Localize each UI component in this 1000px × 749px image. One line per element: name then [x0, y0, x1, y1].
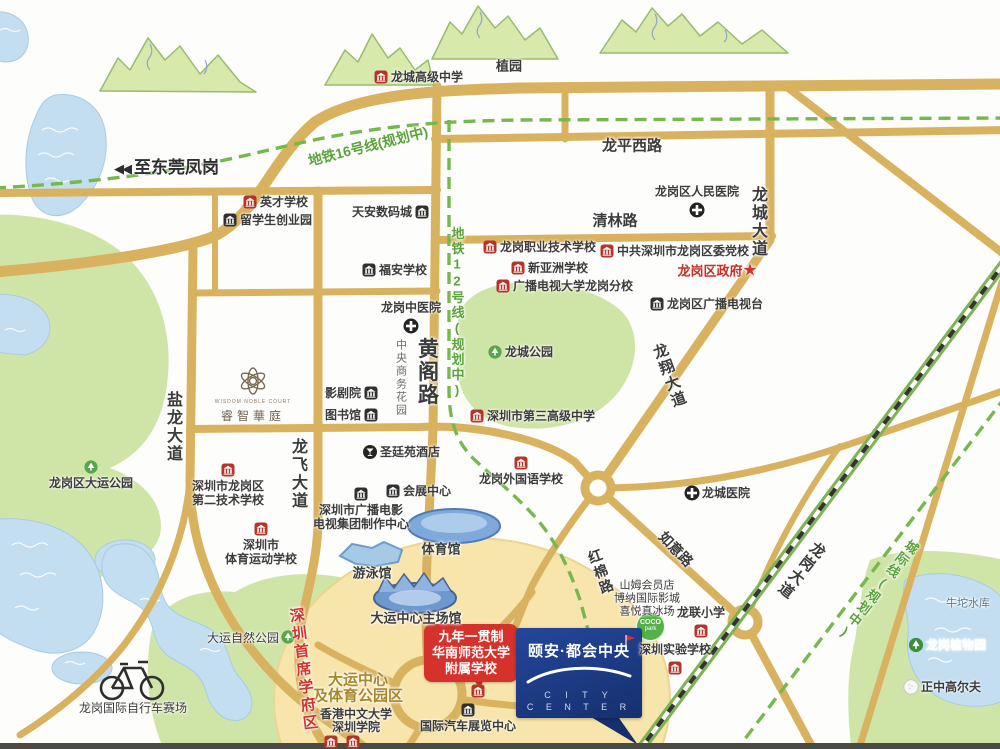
project-en1: C I T Y	[516, 690, 642, 700]
label-sam-line1: 山姆会员店	[620, 581, 675, 592]
poi-no2-tech-school-label: 深圳市龙岗区第二技术学校	[192, 479, 264, 508]
label-cbd-garden: 中央商务花园	[395, 339, 406, 417]
poi-convention-center-label: 会展中心	[403, 484, 451, 498]
poi-auto-expo-center-icon	[462, 704, 475, 717]
poi-shengtingyuan-hotel-label: 圣廷苑酒店	[380, 445, 440, 459]
poi-lg-people-hospital-icon	[689, 202, 705, 218]
poi-longlian-primary-icon	[695, 625, 708, 638]
poi-no3-senior-high-label: 深圳市第三高级中学	[487, 409, 595, 423]
project-callout: 颐安·都会中央 C I T Y C E N T E R	[516, 628, 642, 718]
poi-sz-experimental-school-label: 深圳实验学校	[639, 643, 711, 657]
poi-lg-vocational-school-label: 龙岗职业技术学校	[500, 240, 596, 254]
poi-longcheng-hospital-label: 龙城医院	[702, 486, 750, 500]
poi-yingcai-school-label: 英才学校	[260, 195, 308, 209]
poi-tianan-cyber-park-icon	[416, 206, 429, 219]
poi-lg-people-hospital-label: 龙岗区人民医院	[655, 185, 739, 199]
poi-lg-tcm-hospital-icon	[403, 318, 419, 334]
bottom-bar	[0, 743, 1000, 749]
label-cuhk-2: 深圳学院	[332, 721, 380, 733]
label-government: 龙岗区政府	[677, 265, 742, 278]
school-badge-line1: 九年一贯制	[426, 629, 516, 645]
poi-longcheng-senior-high-label: 龙城高级中学	[391, 70, 463, 84]
court-logo: WISDOM NOBLE COURT 睿智華庭	[213, 362, 293, 424]
poi-convention-center-icon	[387, 485, 400, 498]
coco-line1: COCO	[637, 619, 664, 626]
label-qinglin-rd: 清林路	[592, 214, 637, 229]
project-swoosh-icon	[522, 660, 636, 686]
direction-text: 至东莞凤岗	[134, 158, 219, 177]
poi-dayun-park-label: 龙岗区大运公园	[49, 476, 133, 490]
school-badge: 九年一贯制 华南师范大学 附属学校	[424, 624, 518, 682]
label-huangge-rd: 黄阁路	[417, 338, 438, 407]
poi-cinema-icon	[365, 387, 378, 400]
poi-lg-botanical-garden-label: 龙岗植物园	[926, 638, 986, 652]
poi-no2-tech-school-icon	[222, 464, 235, 477]
label-reservoir: 牛坨水库	[946, 599, 990, 610]
label-natatorium: 游泳馆	[352, 567, 391, 580]
label-gymnasium: 体育馆	[421, 543, 460, 556]
poi-overseas-startup-park-icon	[224, 214, 237, 227]
poi-media-production-center-label: 深圳市广播电影电视集团制作中心	[313, 503, 409, 532]
poi-fuan-school-label: 福安学校	[379, 263, 427, 277]
poi-longcheng-park-label: 龙城公园	[505, 345, 553, 359]
poi-rtvu-lg-branch-label: 广播电视大学龙岗分校	[513, 279, 633, 293]
poi-cuhk-icon-2-icon	[347, 736, 360, 749]
poi-overseas-startup-park-label: 留学生创业园	[240, 213, 312, 227]
natatorium-icon	[340, 542, 402, 566]
double-left-arrow-icon: ◀◀	[114, 161, 130, 176]
poi-new-asia-school-icon	[512, 262, 525, 275]
school-badge-line3: 附属学校	[426, 661, 516, 677]
court-logo-zh: 睿智華庭	[213, 407, 293, 424]
label-sam-line2: 博纳国际影城	[614, 594, 680, 605]
project-title: 颐安·都会中央	[516, 640, 642, 661]
poi-sports-school-icon	[255, 523, 268, 536]
poi-lg-botanical-garden-icon	[909, 638, 924, 653]
poi-media-production-center-icon	[355, 488, 368, 501]
poi-longlian-primary-label: 龙联小学	[677, 606, 725, 620]
project-en2: C E N T E R	[516, 702, 642, 712]
poi-hnu-affiliated-site-icon	[472, 685, 485, 698]
label-gov-star: ★	[742, 262, 757, 279]
direction-note: ◀◀至东莞凤岗	[114, 153, 219, 178]
label-dayun-main-stadium: 大运中心主场馆	[370, 612, 461, 625]
map-canvas: ◀◀至东莞凤岗 WISDOM NOBLE COURT 睿智華庭 COCO par…	[0, 0, 1000, 749]
poi-zhengzhong-golf-label: 正中高尔夫	[921, 680, 981, 694]
poi-sports-school-label: 深圳市体育运动学校	[225, 538, 297, 567]
label-dayun-zone-1: 大运中心	[328, 673, 388, 688]
poi-cuhk-icon-1-icon	[325, 736, 338, 749]
poi-shengtingyuan-hotel-icon	[363, 445, 378, 460]
poi-yingcai-school-icon	[244, 196, 257, 209]
poi-longcheng-park-icon	[488, 345, 502, 359]
poi-fuan-school-icon	[363, 264, 376, 277]
poi-lg-party-school-label: 中共深圳市龙岗区委党校	[617, 244, 749, 258]
label-zhiyuan: 植园	[496, 60, 522, 73]
poi-cinema-label: 影剧院	[325, 386, 361, 400]
poi-longcheng-hospital-icon	[684, 485, 700, 501]
poi-lg-foreign-language-school-icon	[515, 457, 528, 470]
poi-no3-senior-high-icon	[471, 410, 484, 423]
label-cuhk-1: 香港中文大学	[320, 708, 392, 720]
poi-rtvu-lg-branch-icon	[497, 280, 510, 293]
poi-lg-tv-station-label: 龙岗区广播电视台	[667, 297, 763, 311]
label-sam-line3: 喜悦真冰场	[620, 607, 675, 618]
poi-auto-expo-center-label: 国际汽车展览中心	[420, 719, 516, 733]
label-longping-west-rd: 龙平西路	[602, 139, 662, 154]
label-dayun-zone-2: 及体育公园区	[313, 689, 403, 704]
poi-lg-tv-station-icon	[651, 298, 664, 311]
poi-new-asia-school-label: 新亚洲学校	[528, 261, 588, 275]
court-logo-en: WISDOM NOBLE COURT	[213, 399, 293, 405]
poi-lg-tcm-hospital-label: 龙岗中医院	[381, 301, 441, 315]
poi-tianan-cyber-park-label: 天安数码城	[352, 205, 412, 219]
poi-sz-experimental-school-icon	[669, 662, 682, 675]
label-yanlong-ave: 盐龙大道	[164, 391, 180, 463]
label-longcheng-ave: 龙城大道	[749, 186, 765, 258]
label-longfei-ave: 龙飞大道	[289, 438, 305, 510]
poi-lg-foreign-language-school-label: 龙岗外国语学校	[479, 472, 563, 486]
label-dayun-nature-park: 大运自然公园	[207, 632, 279, 644]
poi-lg-vocational-school-icon	[484, 241, 497, 254]
label-velodrome: 龙岗国际自行车赛场	[79, 702, 187, 714]
poi-library-label: 图书馆	[325, 408, 361, 422]
label-metro-line12: 地铁12号线(规划中)	[451, 227, 464, 400]
poi-lg-party-school-icon	[601, 245, 614, 258]
school-badge-line2: 华南师范大学	[426, 645, 516, 661]
poi-zhengzhong-golf-icon	[903, 679, 919, 695]
poi-library-icon	[365, 409, 378, 422]
poi-dayun-park-icon	[84, 460, 98, 474]
poi-longcheng-senior-high-icon	[375, 71, 388, 84]
